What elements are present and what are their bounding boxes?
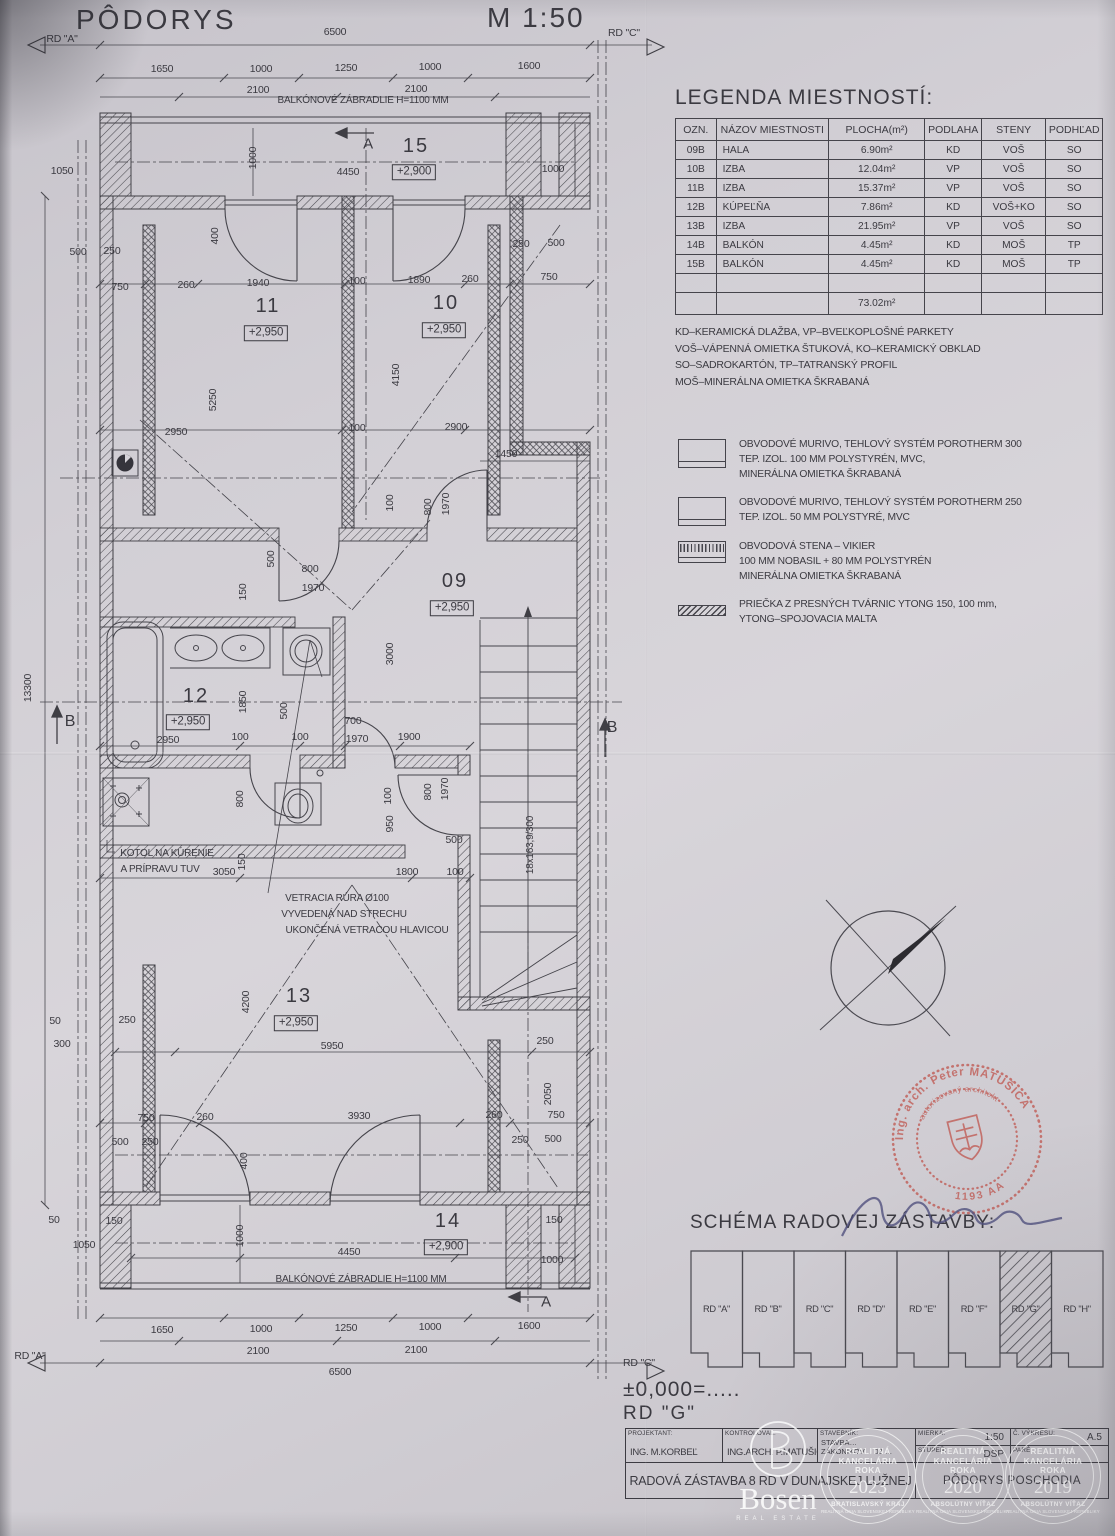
legend-row: 09BHALA6.90m²KDVOŠSO — [676, 141, 1103, 160]
material-description: OBVODOVÉ MURIVO, TEHLOVÝ SYSTÉM POROTHER… — [739, 495, 1022, 526]
dim-label: 150 — [546, 1215, 563, 1226]
dim-label: 100 — [383, 788, 394, 805]
dim-label: 750 — [138, 1113, 155, 1124]
dim-label: 1970 — [441, 493, 452, 516]
stairs-direction-arrow — [524, 606, 532, 997]
stupen-label: STUPEŇ: — [918, 1447, 947, 1454]
legend-table: OZN.NÁZOV MIESTNOSTIPLOCHA(m²)PODLAHASTE… — [675, 118, 1103, 315]
dim-label: 1890 — [408, 275, 431, 286]
legend-note-line: MOŠ–MINERÁLNA OMIETKA ŠKRABANÁ — [675, 374, 1107, 391]
paper-crease — [645, 0, 647, 1536]
material-description: PRIEČKA Z PRESNÝCH TVÁRNIC YTONG 150, 10… — [739, 597, 997, 627]
dim-label: 1970 — [440, 778, 451, 801]
scale-label: M 1:50 — [487, 2, 585, 34]
dim-label: 3930 — [348, 1111, 371, 1122]
dim-label: 150 — [238, 584, 249, 601]
legend-column-header: OZN. — [676, 119, 717, 141]
schema-unit-label: RD "B" — [754, 1304, 781, 1314]
legend-cell: 09B — [676, 141, 717, 160]
legend-cell: KD — [925, 236, 982, 255]
material-line: MINERÁLNA OMIETKA ŠKRABANÁ — [739, 467, 1022, 482]
vykres-value: A.5 — [1087, 1432, 1102, 1443]
legend-cell: VOŠ — [981, 141, 1046, 160]
dim-label: +2,950 — [430, 600, 474, 616]
schema-unit-label: RD "G" — [1011, 1304, 1039, 1314]
schema-unit-label: RD "F" — [961, 1304, 988, 1314]
dim-label: RD "C" — [623, 1358, 655, 1369]
legend-row: 11BIZBA15.37m²VPVOŠSO — [676, 179, 1103, 198]
walls-vikier — [143, 196, 590, 1192]
legend-cell: SO — [1046, 198, 1103, 217]
dim-label: 10 — [433, 293, 459, 313]
legend-notes: KD–KERAMICKÁ DLAŽBA, VP–BVEĽKOPLOŠNÉ PAR… — [675, 324, 1107, 390]
legend-cell: 4.45m² — [828, 236, 924, 255]
projektant-label: PROJEKTANT: — [628, 1430, 672, 1437]
dim-label: 150 — [106, 1216, 123, 1227]
dim-label: 3050 — [213, 867, 236, 878]
material-item: OBVODOVÉ MURIVO, TEHLOVÝ SYSTÉM POROTHER… — [678, 437, 1110, 482]
legend-cell: SO — [1046, 141, 1103, 160]
legend-cell: 12.04m² — [828, 160, 924, 179]
dim-label: 4150 — [391, 364, 402, 387]
dim-label: 150 — [237, 854, 248, 871]
wall-ytong-swatch-icon — [678, 605, 726, 616]
legend-note-line: KD–KERAMICKÁ DLAŽBA, VP–BVEĽKOPLOŠNÉ PAR… — [675, 324, 1107, 341]
legend-cell: 12B — [676, 198, 717, 217]
dim-label: 1900 — [398, 732, 421, 743]
dim-label: 750 — [541, 272, 558, 283]
legend-cell: KÚPEĽŇA — [716, 198, 828, 217]
legend-total-cell: 73.02m² — [828, 293, 924, 315]
dim-label: 250 — [513, 239, 530, 250]
dim-label: 11 — [256, 296, 281, 316]
dim-label: +2,950 — [166, 714, 210, 730]
project-title: RADOVÁ ZÁSTAVBA 8 RD V DUNAJSKEJ LUŽNEJ — [626, 1463, 916, 1498]
legend-cell: SO — [1046, 179, 1103, 198]
legend-cell: VOŠ+KO — [981, 198, 1046, 217]
material-item: OBVODOVÉ MURIVO, TEHLOVÝ SYSTÉM POROTHER… — [678, 495, 1110, 526]
dim-label: 1970 — [346, 734, 369, 745]
dim-label: 800 — [423, 784, 434, 801]
blueprint-page: PÔDORYS M 1:50 RD "A"6500RD "C"165010001… — [0, 0, 1115, 1536]
title-block: PROJEKTANT: ING. M.KORBEĽ KONTROLOVAL: I… — [625, 1428, 1109, 1499]
dim-label: 300 — [54, 1039, 71, 1050]
material-description: OBVODOVÉ MURIVO, TEHLOVÝ SYSTÉM POROTHER… — [739, 437, 1022, 482]
dim-label: 5250 — [208, 389, 219, 412]
projektant-value: ING. M.KORBEĽ — [630, 1447, 697, 1458]
dim-label: BALKÓNOVÉ ZÁBRADLIE H=1100 MM — [277, 96, 448, 106]
dim-label: 1600 — [518, 1321, 541, 1332]
wall-porotherm-300-swatch-icon — [678, 439, 726, 468]
legend-row: 15BBALKÓN4.45m²KDMOŠTP — [676, 255, 1103, 274]
dim-label: 100 — [349, 423, 366, 434]
stamp-architect-name: Ing. arch. Peter MATUŠICA — [880, 1051, 1032, 1143]
dim-label: 500 — [266, 551, 277, 568]
dim-label: 3000 — [385, 643, 396, 666]
legend-empty-row — [676, 274, 1103, 293]
dim-label: +2,900 — [424, 1239, 468, 1255]
legend-cell: BALKÓN — [716, 255, 828, 274]
dim-label: 2100 — [247, 85, 270, 96]
dim-label: 1850 — [238, 691, 249, 714]
legend-section: LEGENDA MIESTNOSTÍ: OZN.NÁZOV MIESTNOSTI… — [675, 86, 1107, 390]
dim-label: 800 — [423, 499, 434, 516]
dim-label: 1800 — [396, 867, 419, 878]
dim-label: B — [65, 714, 75, 730]
dim-label: 750 — [112, 282, 129, 293]
legend-cell: 14B — [676, 236, 717, 255]
kontroloval-label: KONTROLOVAL: — [725, 1430, 776, 1437]
schema-unit-label: RD "C" — [806, 1304, 834, 1314]
dim-label: 400 — [210, 228, 221, 245]
dim-label: 100 — [292, 732, 309, 743]
dim-label: 15 — [403, 136, 429, 156]
legend-cell: VOŠ — [981, 160, 1046, 179]
dim-label: 250 — [537, 1036, 554, 1047]
dim-label: 4450 — [338, 1247, 361, 1258]
legend-row: 12BKÚPEĽŇA7.86m²KDVOŠ+KOSO — [676, 198, 1103, 217]
dim-label: 1650 — [151, 1325, 174, 1336]
material-line: OBVODOVÉ MURIVO, TEHLOVÝ SYSTÉM POROTHER… — [739, 495, 1022, 510]
dim-label: 1000 — [250, 1324, 273, 1335]
schema-unit-label: RD "D" — [857, 1304, 885, 1314]
material-line: 100 MM NOBASIL + 80 MM POLYSTYRÉN — [739, 554, 931, 569]
dim-label: 1000 — [248, 147, 259, 170]
legend-cell: 15.37m² — [828, 179, 924, 198]
schema-unit-label: RD "E" — [909, 1304, 936, 1314]
titleblock-projektant: PROJEKTANT: ING. M.KORBEĽ — [626, 1429, 723, 1463]
legend-cell — [925, 274, 982, 293]
dim-label: 260 — [197, 1112, 214, 1123]
vykres-label: Č. VÝKRESU: — [1013, 1430, 1055, 1437]
dim-label: B — [607, 720, 617, 736]
material-item: OBVODOVÁ STENA – VIKIER100 MM NOBASIL + … — [678, 539, 1110, 584]
legend-total-cell — [676, 293, 717, 315]
dim-label: 260 — [486, 1110, 503, 1121]
legend-cell: BALKÓN — [716, 236, 828, 255]
legend-cell: KD — [925, 141, 982, 160]
dim-label: 1970 — [302, 583, 325, 594]
material-line: MINERÁLNA OMIETKA ŠKRABANÁ — [739, 569, 931, 584]
legend-cell: IZBA — [716, 160, 828, 179]
dim-label: 1050 — [51, 166, 74, 177]
dim-label: RD "A" — [46, 34, 77, 45]
wall-vikier-swatch-icon — [678, 541, 726, 563]
drawing-title: PÔDORYS POSCHODIA — [916, 1463, 1108, 1498]
titleblock-stavebnik: STAVEBNÍK: STAVBA… ZÁKONIKOV… 03 … — [818, 1429, 916, 1463]
dim-label: 50 — [48, 1215, 59, 1226]
schema-unit-label: RD "H" — [1063, 1304, 1091, 1314]
material-item: PRIEČKA Z PRESNÝCH TVÁRNIC YTONG 150, 10… — [678, 597, 1110, 627]
dim-label: A PRÍPRAVU TUV — [120, 865, 199, 875]
dim-label: 13300 — [23, 674, 34, 702]
legend-cell — [1046, 274, 1103, 293]
legend-column-header: PLOCHA(m²) — [828, 119, 924, 141]
dim-label: VETRACIA RÚRA Ø100 — [285, 894, 389, 904]
legend-total-row: 73.02m² — [676, 293, 1103, 315]
legend-cell: TP — [1046, 236, 1103, 255]
stupen-value: DSP — [983, 1449, 1004, 1460]
legend-cell: 6.90m² — [828, 141, 924, 160]
dim-label: +2,950 — [244, 325, 288, 341]
dim-label: 260 — [178, 280, 195, 291]
dim-label: 500 — [112, 1137, 129, 1148]
legend-cell: MOŠ — [981, 236, 1046, 255]
legend-cell: IZBA — [716, 179, 828, 198]
legend-cell: VOŠ — [981, 179, 1046, 198]
dim-label: 09 — [442, 571, 468, 591]
material-line: TEP. IZOL. 50 MM POLYSTYRÉ, MVC — [739, 510, 1022, 525]
paper-crease — [0, 752, 1115, 755]
dim-label: UKONČENÁ VETRACOU HLAVICOU — [286, 926, 449, 936]
mierka-label: MIERKA: — [918, 1430, 945, 1437]
dim-label: 250 — [104, 246, 121, 257]
legend-cell: VP — [925, 217, 982, 236]
mierka-value: 1:50 — [985, 1432, 1004, 1443]
dim-label: 1000 — [419, 62, 442, 73]
level-note-line2: RD "G" — [623, 1404, 741, 1425]
dim-label: 100 — [447, 867, 464, 878]
vent-icon — [112, 450, 138, 476]
dim-label: 100 — [385, 495, 396, 512]
dim-label: 800 — [302, 564, 319, 575]
material-line: YTONG–SPOJOVACIA MALTA — [739, 612, 997, 627]
dim-label: 2100 — [247, 1346, 270, 1357]
level-note-line1: ±0,000=..... — [623, 1378, 741, 1401]
legend-note-line: SO–SADROKARTÓN, TP–TATRANSKÝ PROFIL — [675, 357, 1107, 374]
legend-row: 10BIZBA12.04m²VPVOŠSO — [676, 160, 1103, 179]
dim-label: 4450 — [337, 167, 360, 178]
dim-label: 250 — [119, 1015, 136, 1026]
dim-label: 2900 — [445, 422, 468, 433]
dim-label: KOTOL NA KÚRENIE — [120, 849, 214, 859]
legend-cell — [716, 274, 828, 293]
pare-label: PARÉ: — [1013, 1447, 1032, 1454]
dim-label: RD "C" — [608, 28, 640, 39]
dim-label: 1000 — [235, 1225, 246, 1248]
legend-cell: HALA — [716, 141, 828, 160]
kontroloval-value: ING.ARCH. P.MATUŠICA — [727, 1447, 818, 1458]
signature — [822, 1178, 1082, 1258]
legend-cell: KD — [925, 198, 982, 217]
material-line: PRIEČKA Z PRESNÝCH TVÁRNIC YTONG 150, 10… — [739, 597, 997, 612]
legend-cell: SO — [1046, 217, 1103, 236]
dim-label: 100 — [232, 732, 249, 743]
dim-label: 1250 — [335, 63, 358, 74]
reference-lines — [40, 40, 622, 1380]
dim-label: 1250 — [335, 1323, 358, 1334]
dim-label: BALKÓNOVÉ ZÁBRADLIE H=1100 MM — [275, 1275, 446, 1285]
dim-label: 4200 — [241, 991, 252, 1014]
legend-cell: 10B — [676, 160, 717, 179]
dim-label: 260 — [462, 274, 479, 285]
dim-label: 100 — [349, 276, 366, 287]
legend-row: 14BBALKÓN4.45m²KDMOŠTP — [676, 236, 1103, 255]
dim-label: RD "A" — [14, 1351, 45, 1362]
legend-cell: KD — [925, 255, 982, 274]
legend-column-header: PODLAHA — [925, 119, 982, 141]
dim-label: 2950 — [157, 735, 180, 746]
dim-label: 800 — [235, 791, 246, 808]
dim-label: 250 — [142, 1137, 159, 1148]
legend-cell: TP — [1046, 255, 1103, 274]
stavebnik-value: STAVBA… ZÁKONIKOV… 03 … — [821, 1438, 892, 1456]
legend-cell: SO — [1046, 160, 1103, 179]
dim-label: 2100 — [405, 1345, 428, 1356]
legend-cell: VOŠ — [981, 217, 1046, 236]
dim-label: 18x163,9/300 — [526, 816, 536, 874]
dim-label: 1000 — [419, 1322, 442, 1333]
dim-label: 6500 — [329, 1367, 352, 1378]
level-note: ±0,000=..... RD "G" — [623, 1378, 741, 1425]
titleblock-kontroloval: KONTROLOVAL: ING.ARCH. P.MATUŠICA — [723, 1429, 818, 1463]
dim-label: 500 — [279, 703, 290, 720]
dim-label: 1000 — [250, 64, 273, 75]
legend-cell: VP — [925, 160, 982, 179]
dim-label: 750 — [548, 1110, 565, 1121]
dim-label: 6500 — [324, 27, 347, 38]
legend-column-header: PODHĽAD — [1046, 119, 1103, 141]
material-line: OBVODOVÁ STENA – VIKIER — [739, 539, 931, 554]
dim-label: 2050 — [543, 1083, 554, 1106]
dim-label: +2,950 — [274, 1015, 318, 1031]
dim-label: 50 — [49, 1016, 60, 1027]
dim-label: 1600 — [518, 61, 541, 72]
legend-cell: MOŠ — [981, 255, 1046, 274]
material-line: TEP. IZOL. 100 MM POLYSTYRÉN, MVC, — [739, 452, 1022, 467]
wall-porotherm-250-swatch-icon — [678, 497, 726, 526]
dim-label: 500 — [548, 238, 565, 249]
dim-label: 950 — [385, 816, 396, 833]
dim-label: 1000 — [541, 1255, 564, 1266]
legend-total-cell — [925, 293, 982, 315]
legend-note-line: VOŠ–VÁPENNÁ OMIETKA ŠTUKOVÁ, KO–KERAMICK… — [675, 341, 1107, 358]
bathroom-fixtures — [107, 622, 330, 825]
dim-label: 14 — [435, 1211, 461, 1231]
legend-total-cell — [716, 293, 828, 315]
titleblock-mierka-stupen: MIERKA: 1:50 STUPEŇ: DSP — [916, 1429, 1011, 1463]
titleblock-vykres-pare: Č. VÝKRESU: A.5 PARÉ: — [1011, 1429, 1108, 1463]
section-marker-arrows — [52, 128, 610, 1302]
dim-label: 1000 — [542, 164, 565, 175]
dim-label: VYVEDENÁ NAD STRECHU — [281, 910, 406, 920]
legend-row: 13BIZBA21.95m²VPVOŠSO — [676, 217, 1103, 236]
legend-cell: 7.86m² — [828, 198, 924, 217]
row-house-schema: RD "A"RD "B"RD "C"RD "D"RD "E"RD "F"RD "… — [690, 1250, 1110, 1374]
dim-label: A — [541, 1295, 551, 1310]
legend-cell — [981, 274, 1046, 293]
dim-label: 500 — [545, 1134, 562, 1145]
dim-label: 1940 — [247, 278, 270, 289]
material-description: OBVODOVÁ STENA – VIKIER100 MM NOBASIL + … — [739, 539, 931, 584]
svg-text:Ing. arch. Peter MATUŠICA: Ing. arch. Peter MATUŠICA — [880, 1051, 1032, 1143]
dim-label: 250 — [512, 1135, 529, 1146]
legend-column-header: STENY — [981, 119, 1046, 141]
legend-cell: IZBA — [716, 217, 828, 236]
legend-cell: 13B — [676, 217, 717, 236]
legend-cell: 4.45m² — [828, 255, 924, 274]
legend-title: LEGENDA MIESTNOSTÍ: — [675, 86, 1107, 110]
dim-label: 1650 — [151, 64, 174, 75]
stavebnik-label: STAVEBNÍK: — [820, 1430, 858, 1437]
stamp-shield-icon — [947, 1115, 986, 1163]
dim-label: +2,900 — [392, 164, 436, 180]
dim-label: 700 — [345, 716, 362, 727]
dim-label: 12 — [183, 686, 209, 706]
legend-total-cell — [981, 293, 1046, 315]
legend-cell: 15B — [676, 255, 717, 274]
north-compass-icon — [820, 900, 956, 1036]
legend-cell — [828, 274, 924, 293]
dim-label: 1050 — [73, 1240, 96, 1251]
dim-label: 500 — [70, 247, 87, 258]
legend-total-cell — [1046, 293, 1103, 315]
materials-legend: OBVODOVÉ MURIVO, TEHLOVÝ SYSTÉM POROTHER… — [678, 437, 1110, 640]
legend-cell: 21.95m² — [828, 217, 924, 236]
dim-label: 500 — [446, 835, 463, 846]
dim-label: 1450 — [495, 449, 518, 460]
material-line: OBVODOVÉ MURIVO, TEHLOVÝ SYSTÉM POROTHER… — [739, 437, 1022, 452]
dim-label: 2950 — [165, 427, 188, 438]
legend-cell: 11B — [676, 179, 717, 198]
dim-label: 400 — [239, 1153, 250, 1170]
dim-label: A — [363, 137, 373, 152]
legend-column-header: NÁZOV MIESTNOSTI — [716, 119, 828, 141]
legend-cell — [676, 274, 717, 293]
legend-cell: VP — [925, 179, 982, 198]
dim-label: +2,950 — [422, 322, 466, 338]
dim-label: 13 — [286, 986, 312, 1006]
dim-label: 2100 — [405, 84, 428, 95]
door-swings — [160, 209, 487, 1205]
schema-unit-label: RD "A" — [703, 1304, 730, 1314]
dim-label: 5950 — [321, 1041, 344, 1052]
page-title: PÔDORYS — [76, 4, 237, 36]
